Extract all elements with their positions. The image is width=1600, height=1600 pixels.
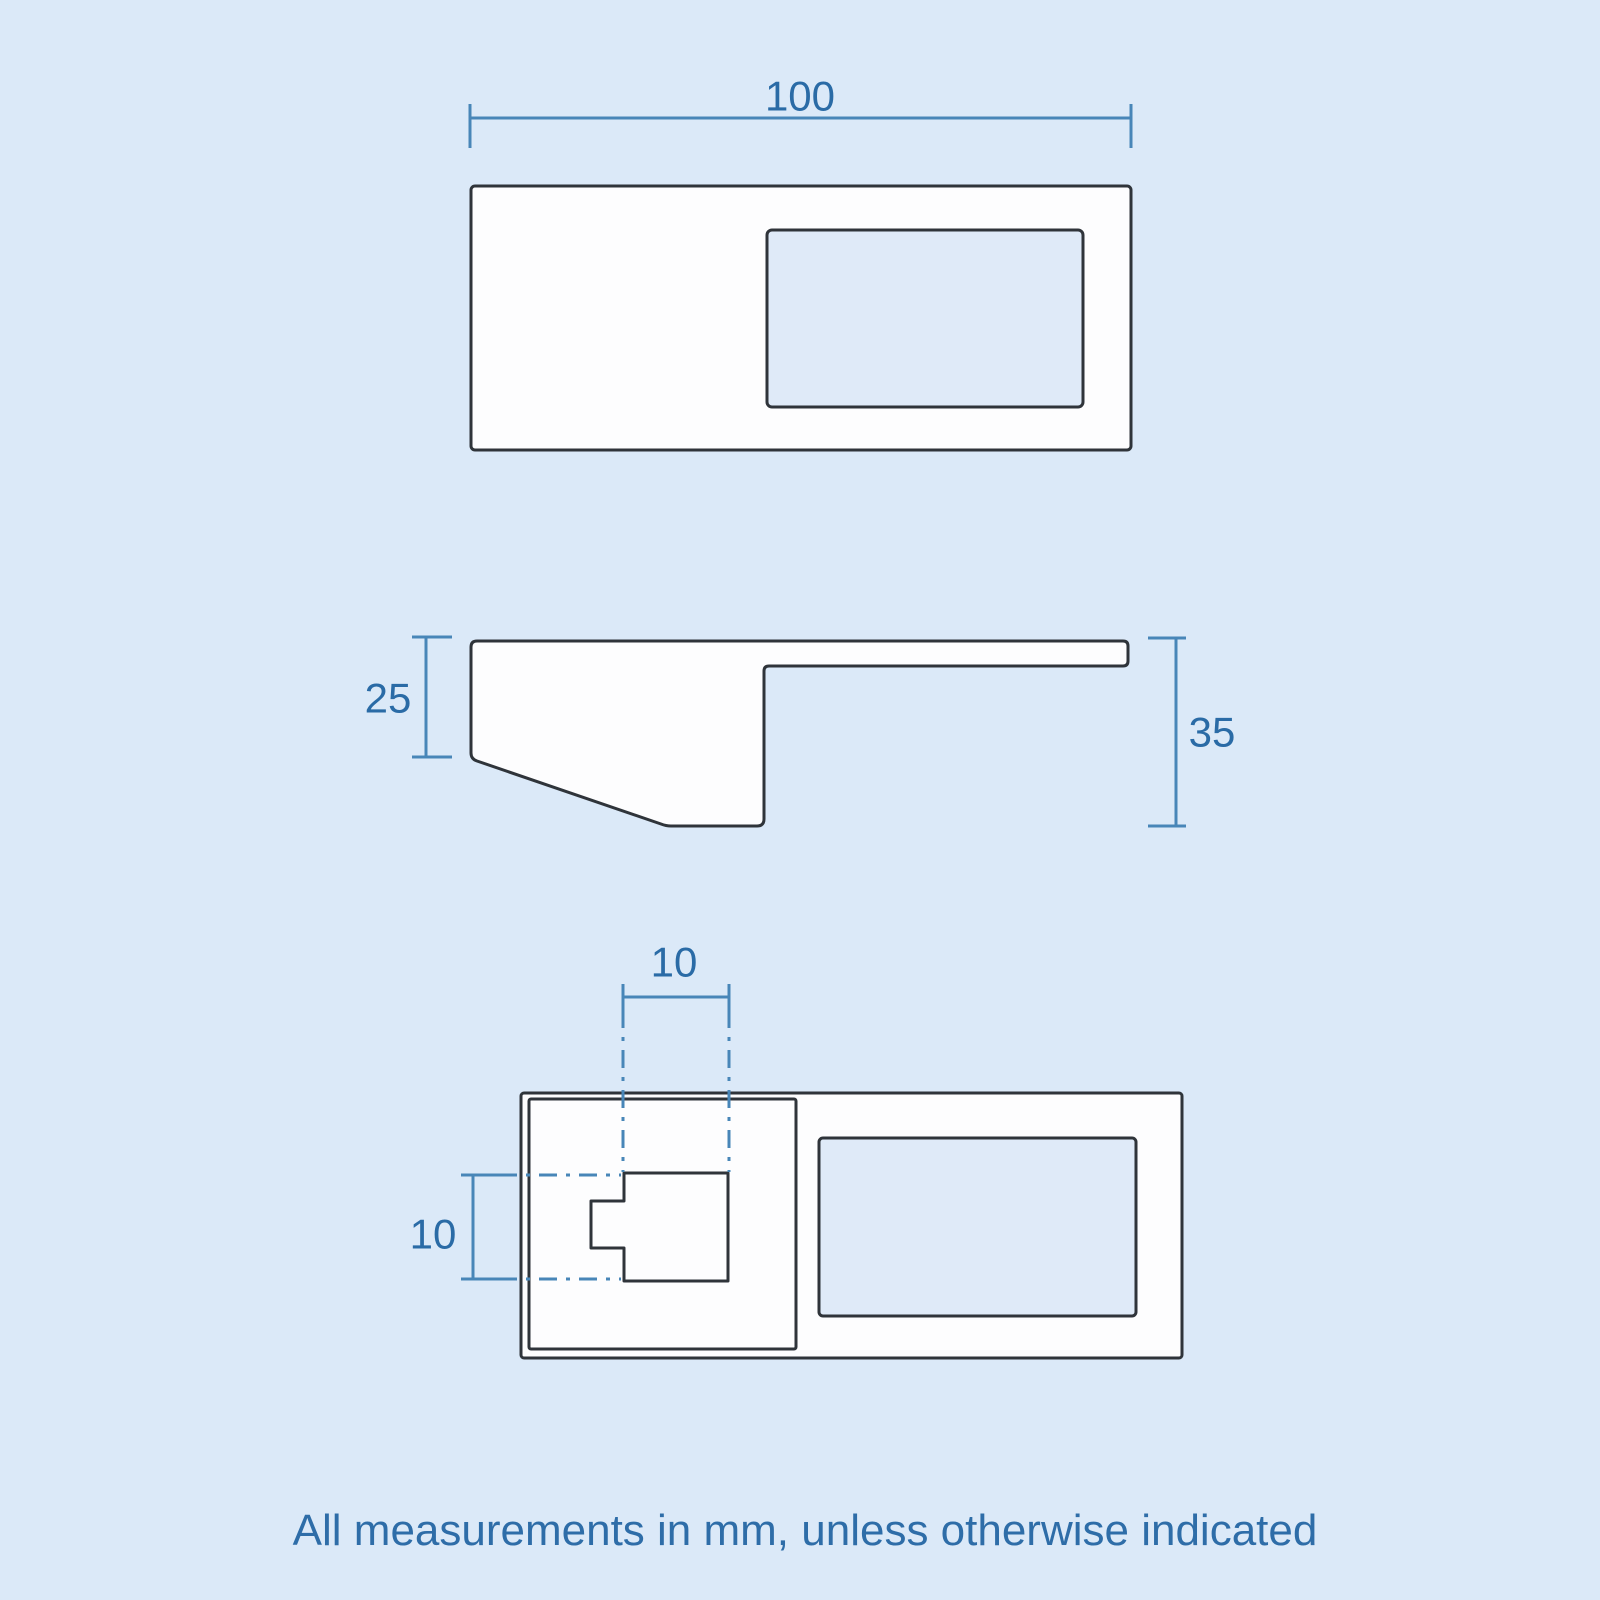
plan-view: 10 10: [410, 939, 1182, 1359]
measurements-caption: All measurements in mm, unless otherwise…: [293, 1506, 1318, 1555]
dimension-label-10-width: 10: [651, 939, 698, 986]
technical-drawing-canvas: 100 25 35 10: [0, 0, 1600, 1600]
dimension-label-10-height: 10: [410, 1211, 457, 1258]
dimension-label-25: 25: [365, 675, 412, 722]
side-view: 25 35: [365, 637, 1236, 826]
side-right-height-dimension: 35: [1148, 638, 1235, 826]
plan-notch-height-dimension: 10: [410, 1175, 499, 1279]
dimension-label-35: 35: [1189, 709, 1236, 756]
plan-notch-width-dimension: 10: [623, 939, 729, 1011]
plan-view-basin-recess: [819, 1138, 1136, 1316]
side-left-depth-dimension: 25: [365, 637, 452, 757]
top-view: 100: [470, 73, 1131, 451]
dimension-label-100: 100: [765, 73, 835, 120]
top-width-dimension: 100: [470, 73, 1131, 149]
top-view-basin-recess: [767, 230, 1083, 407]
side-view-profile-outline: [471, 641, 1128, 826]
